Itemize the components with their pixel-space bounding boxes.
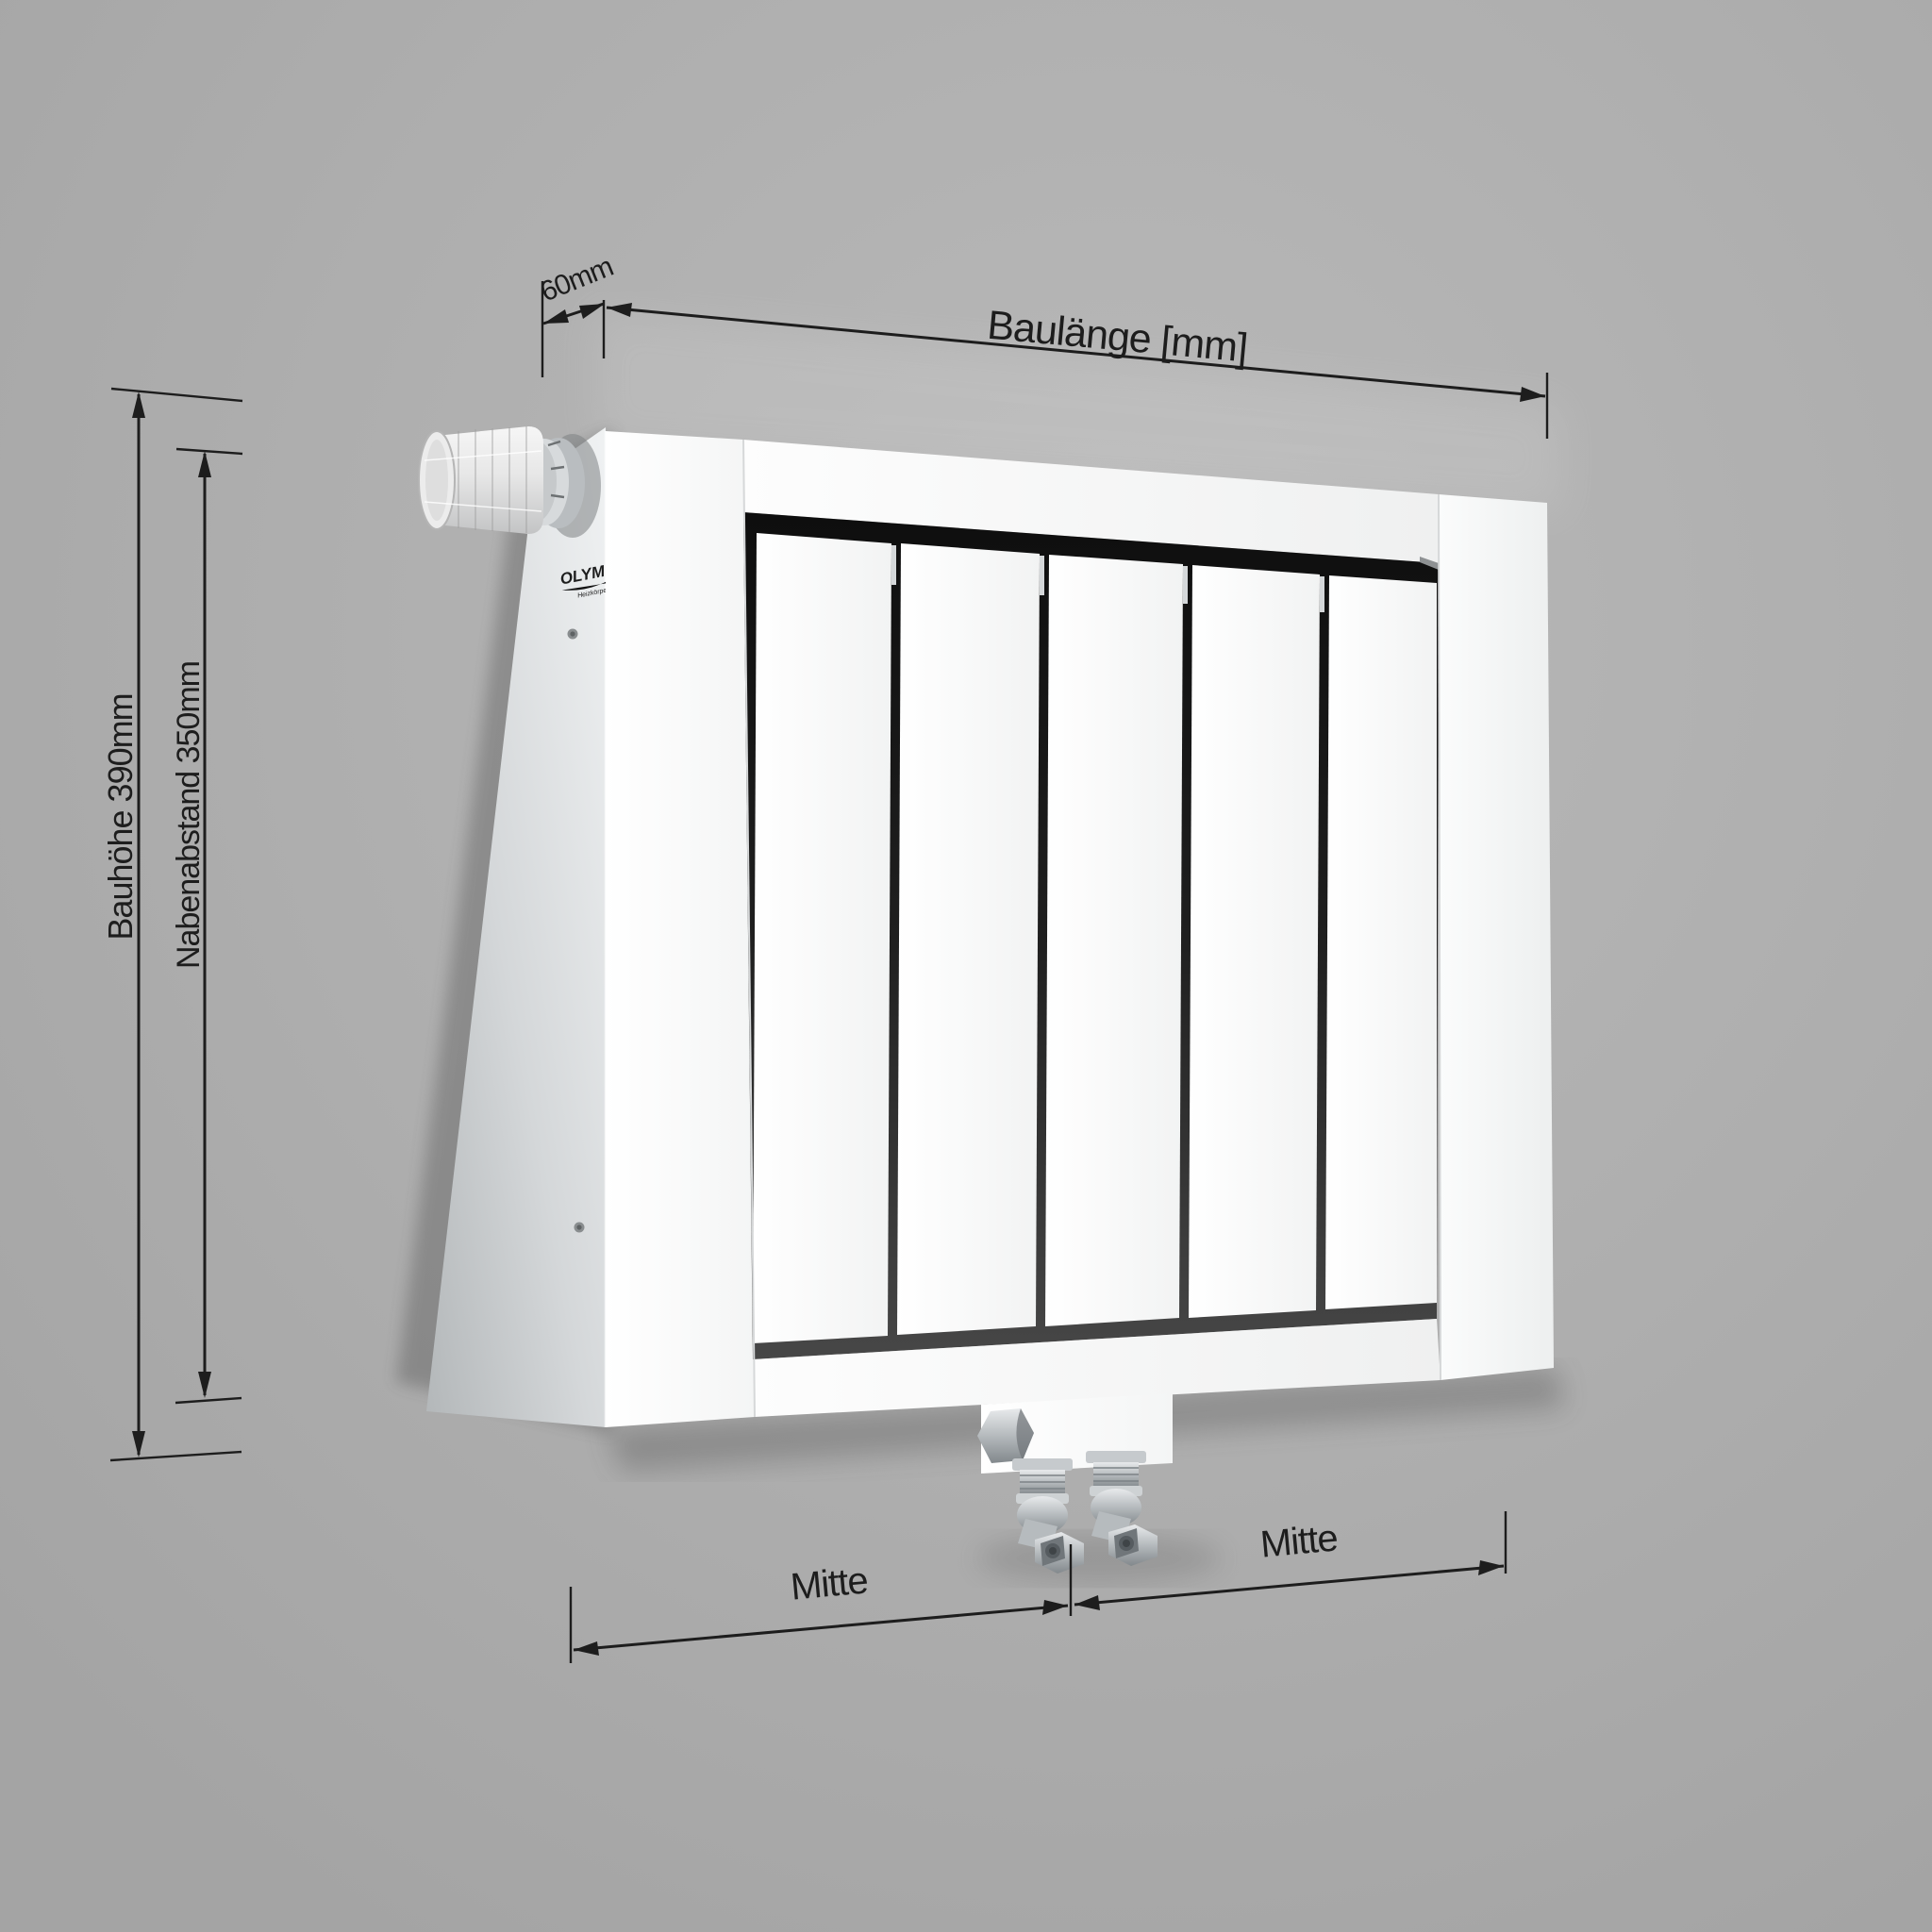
slat-5 bbox=[1325, 575, 1437, 1309]
radiator-left-column bbox=[606, 431, 755, 1427]
thermostat-knob-cap-inner bbox=[425, 440, 448, 521]
slat-4 bbox=[1189, 565, 1320, 1318]
radiator-slats bbox=[753, 533, 1437, 1343]
side-panel-hole-bottom-center bbox=[576, 1224, 581, 1229]
radiator-right-column bbox=[1439, 494, 1554, 1380]
wall-shadow-valves bbox=[976, 1534, 1222, 1583]
dim-center-left-label: Mitte bbox=[789, 1559, 869, 1607]
dim-height-label: Bauhöhe 390mm bbox=[101, 693, 140, 940]
side-panel-hole-top-center bbox=[570, 631, 575, 636]
slat-3 bbox=[1045, 555, 1183, 1326]
dim-hub-label: Nabenabstand 350mm bbox=[171, 661, 207, 969]
thermostat-head bbox=[419, 426, 601, 538]
slat-1 bbox=[753, 533, 891, 1343]
dim-center-right-label: Mitte bbox=[1258, 1517, 1339, 1565]
slat-2 bbox=[897, 543, 1040, 1335]
illustration-canvas: OLYMP Heizkörper bbox=[0, 0, 1932, 1932]
